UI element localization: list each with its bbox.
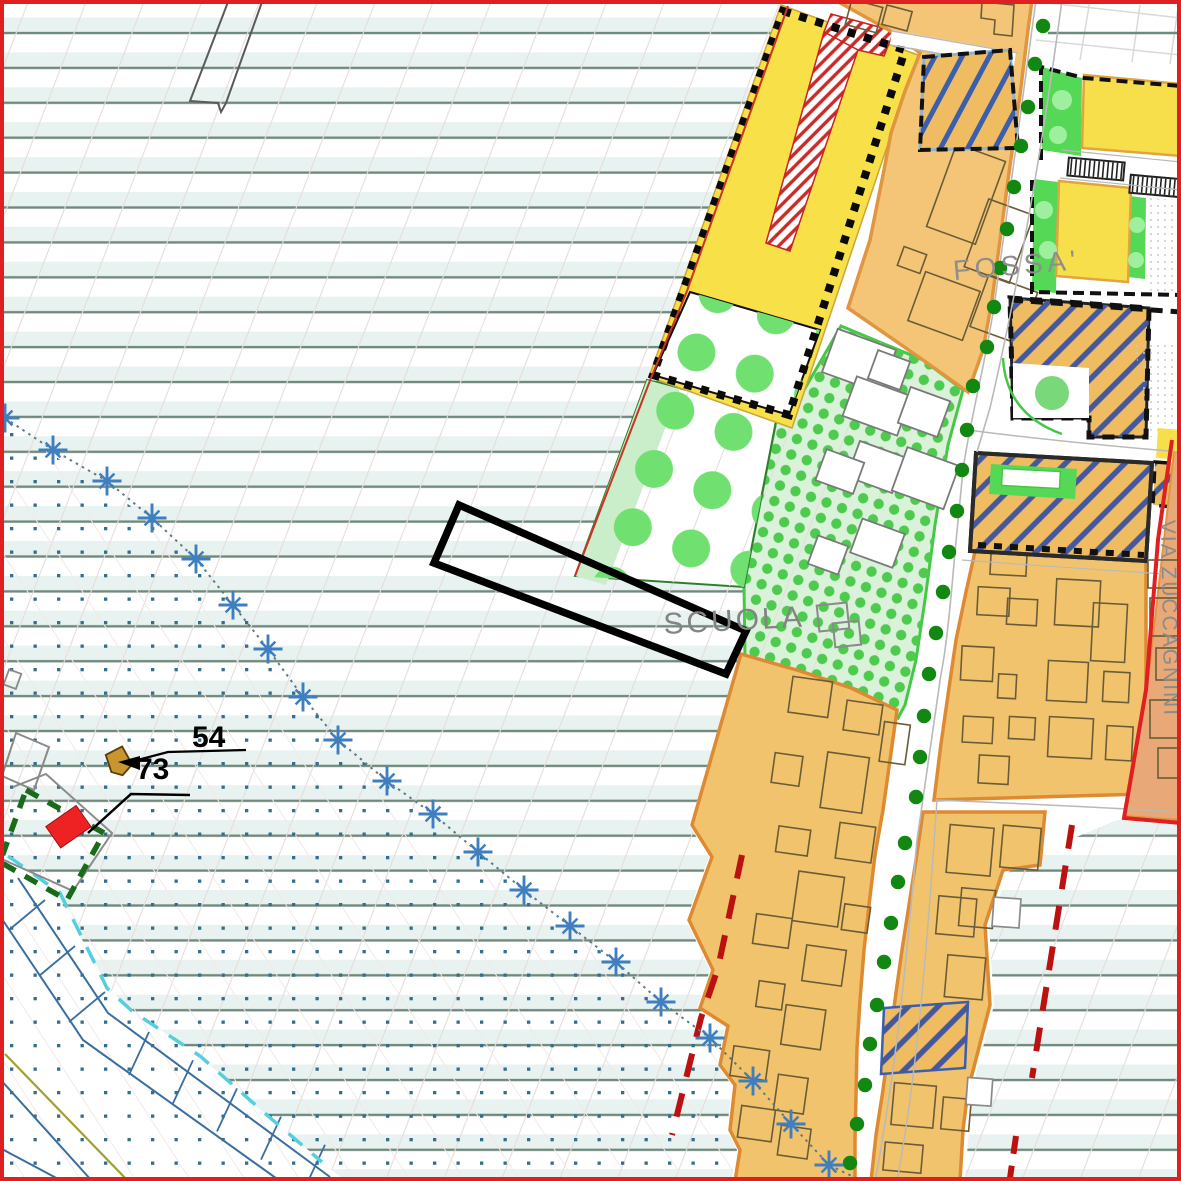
- svg-text:54: 54: [192, 721, 226, 754]
- svg-text:73: 73: [136, 753, 169, 786]
